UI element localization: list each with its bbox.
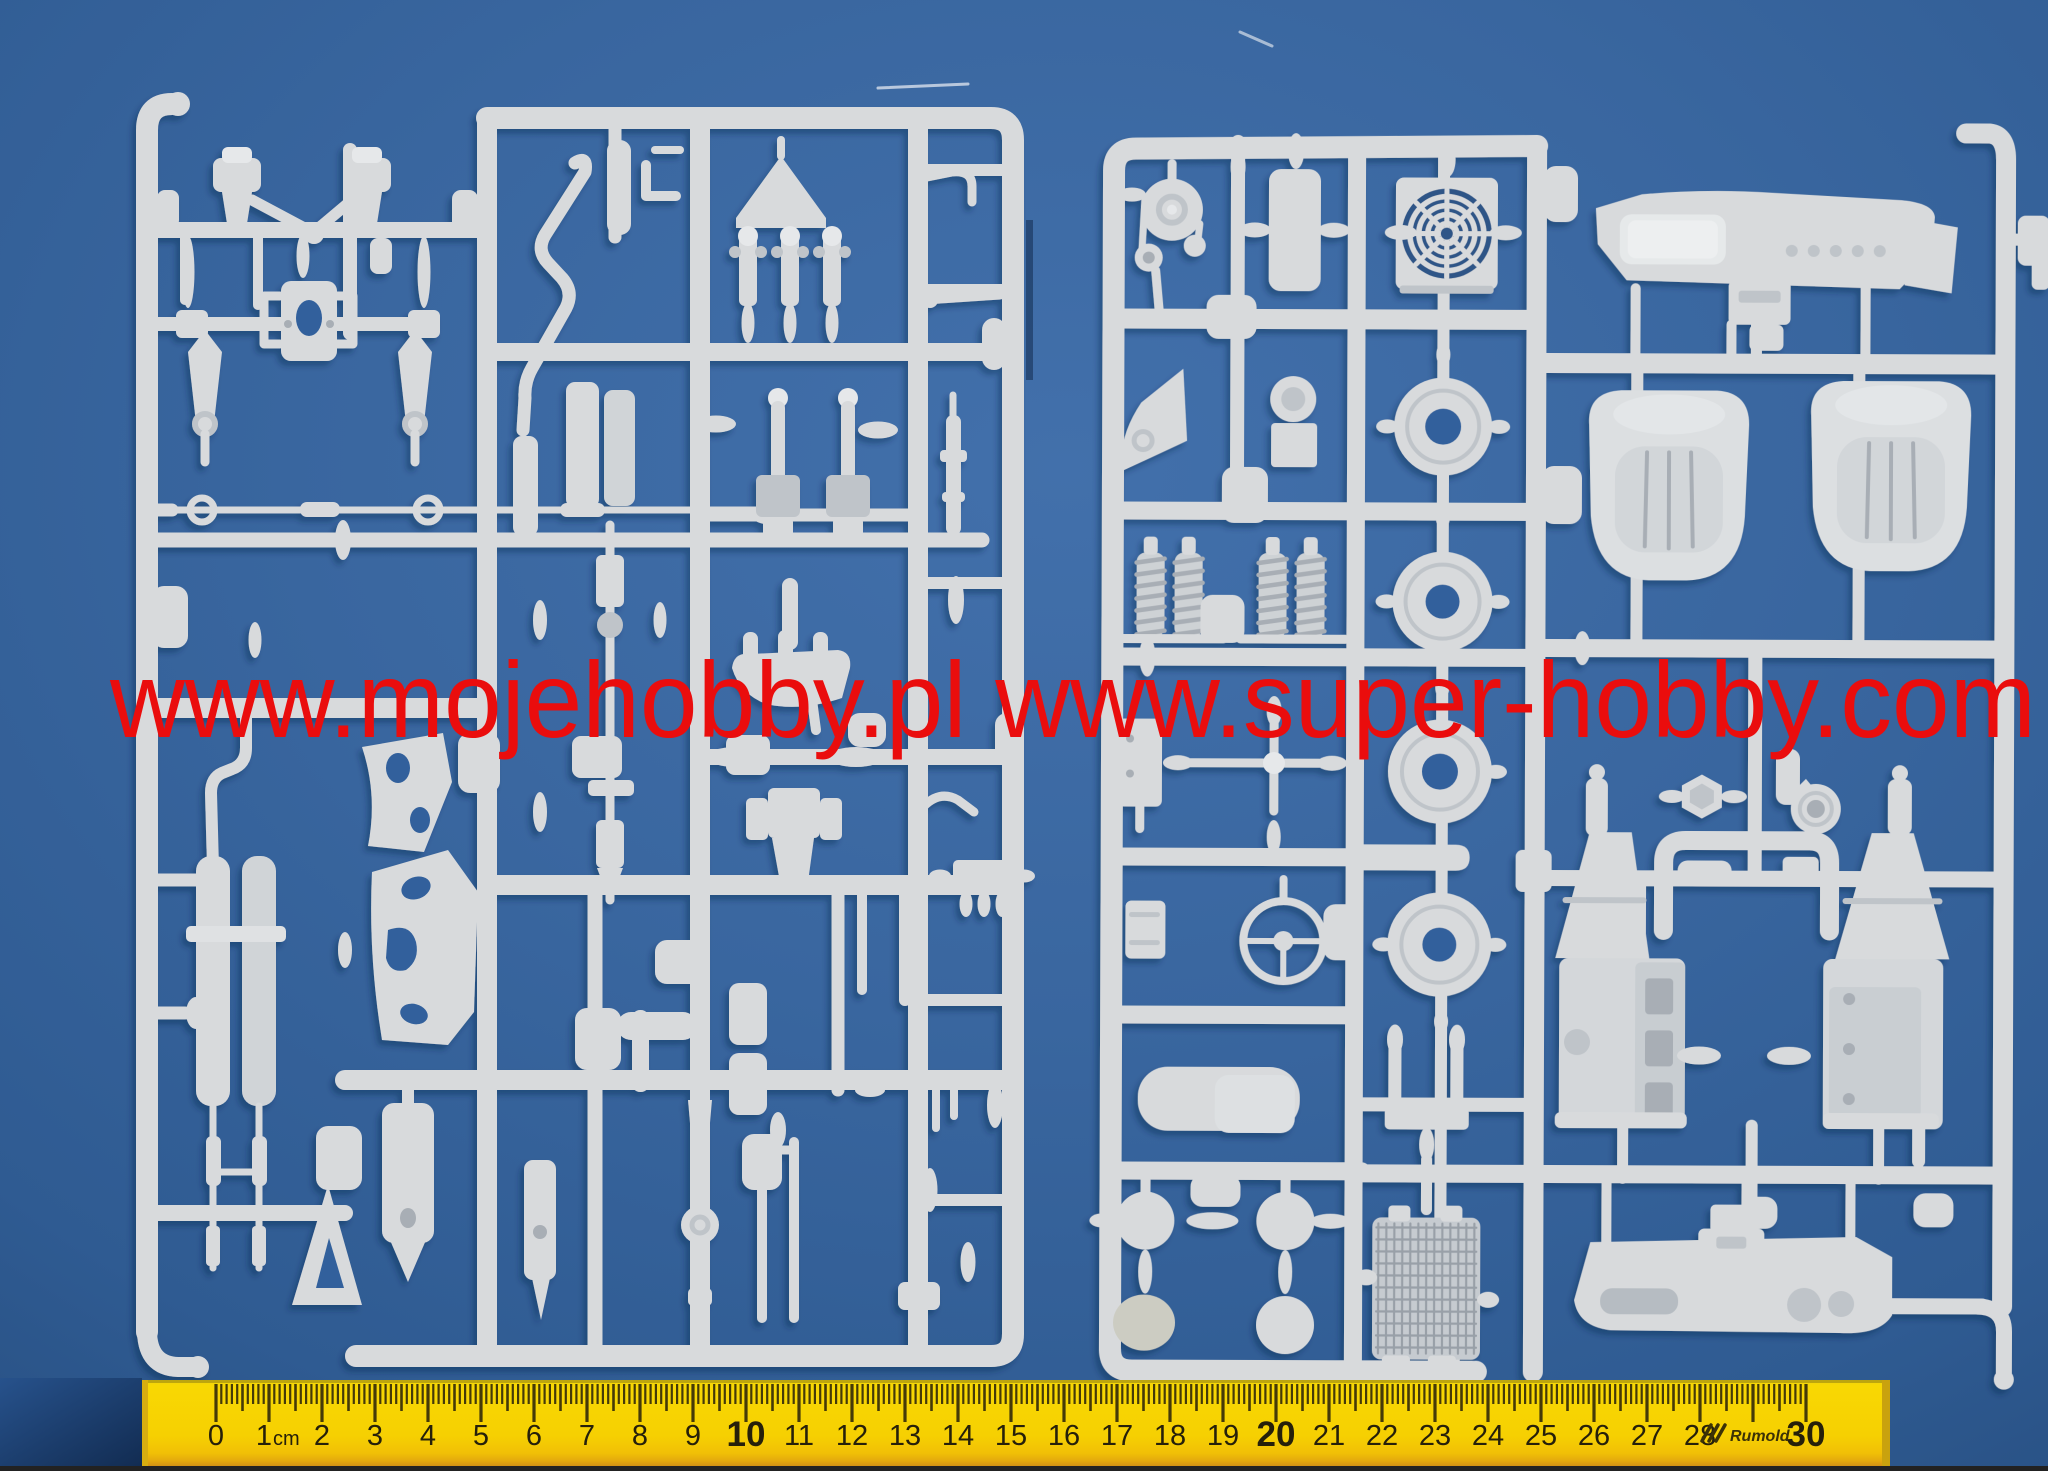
svg-text:www.mojehobby.pl www.super-hob: www.mojehobby.pl www.super-hobby.com <box>109 639 2036 760</box>
svg-text:13: 13 <box>889 1420 921 1452</box>
svg-text:23: 23 <box>1419 1420 1451 1452</box>
svg-text:8: 8 <box>632 1420 648 1452</box>
svg-text:7: 7 <box>579 1420 595 1452</box>
svg-text:19: 19 <box>1207 1420 1239 1452</box>
svg-text:0: 0 <box>208 1420 224 1452</box>
svg-text:cm: cm <box>273 1428 300 1450</box>
svg-text:6: 6 <box>526 1420 542 1452</box>
svg-text:9: 9 <box>685 1420 701 1452</box>
svg-text:15: 15 <box>995 1420 1027 1452</box>
svg-text:21: 21 <box>1313 1420 1345 1452</box>
svg-text:5: 5 <box>473 1420 489 1452</box>
svg-text:Rumold: Rumold <box>1730 1428 1791 1445</box>
svg-text:25: 25 <box>1525 1420 1557 1452</box>
svg-text:30: 30 <box>1787 1415 1826 1454</box>
svg-text:24: 24 <box>1472 1420 1504 1452</box>
svg-text:4: 4 <box>420 1420 436 1452</box>
svg-text:10: 10 <box>727 1415 766 1454</box>
svg-text:17: 17 <box>1101 1420 1133 1452</box>
svg-text:2: 2 <box>314 1420 330 1452</box>
svg-text:26: 26 <box>1578 1420 1610 1452</box>
svg-text:1: 1 <box>256 1420 272 1452</box>
svg-text:3: 3 <box>367 1420 383 1452</box>
svg-text:12: 12 <box>836 1420 868 1452</box>
svg-text:14: 14 <box>942 1420 974 1452</box>
svg-text:11: 11 <box>784 1420 814 1452</box>
svg-text:20: 20 <box>1257 1415 1296 1454</box>
svg-text:16: 16 <box>1048 1420 1080 1452</box>
svg-text:27: 27 <box>1631 1420 1663 1452</box>
svg-text:22: 22 <box>1366 1420 1398 1452</box>
svg-text:18: 18 <box>1154 1420 1186 1452</box>
